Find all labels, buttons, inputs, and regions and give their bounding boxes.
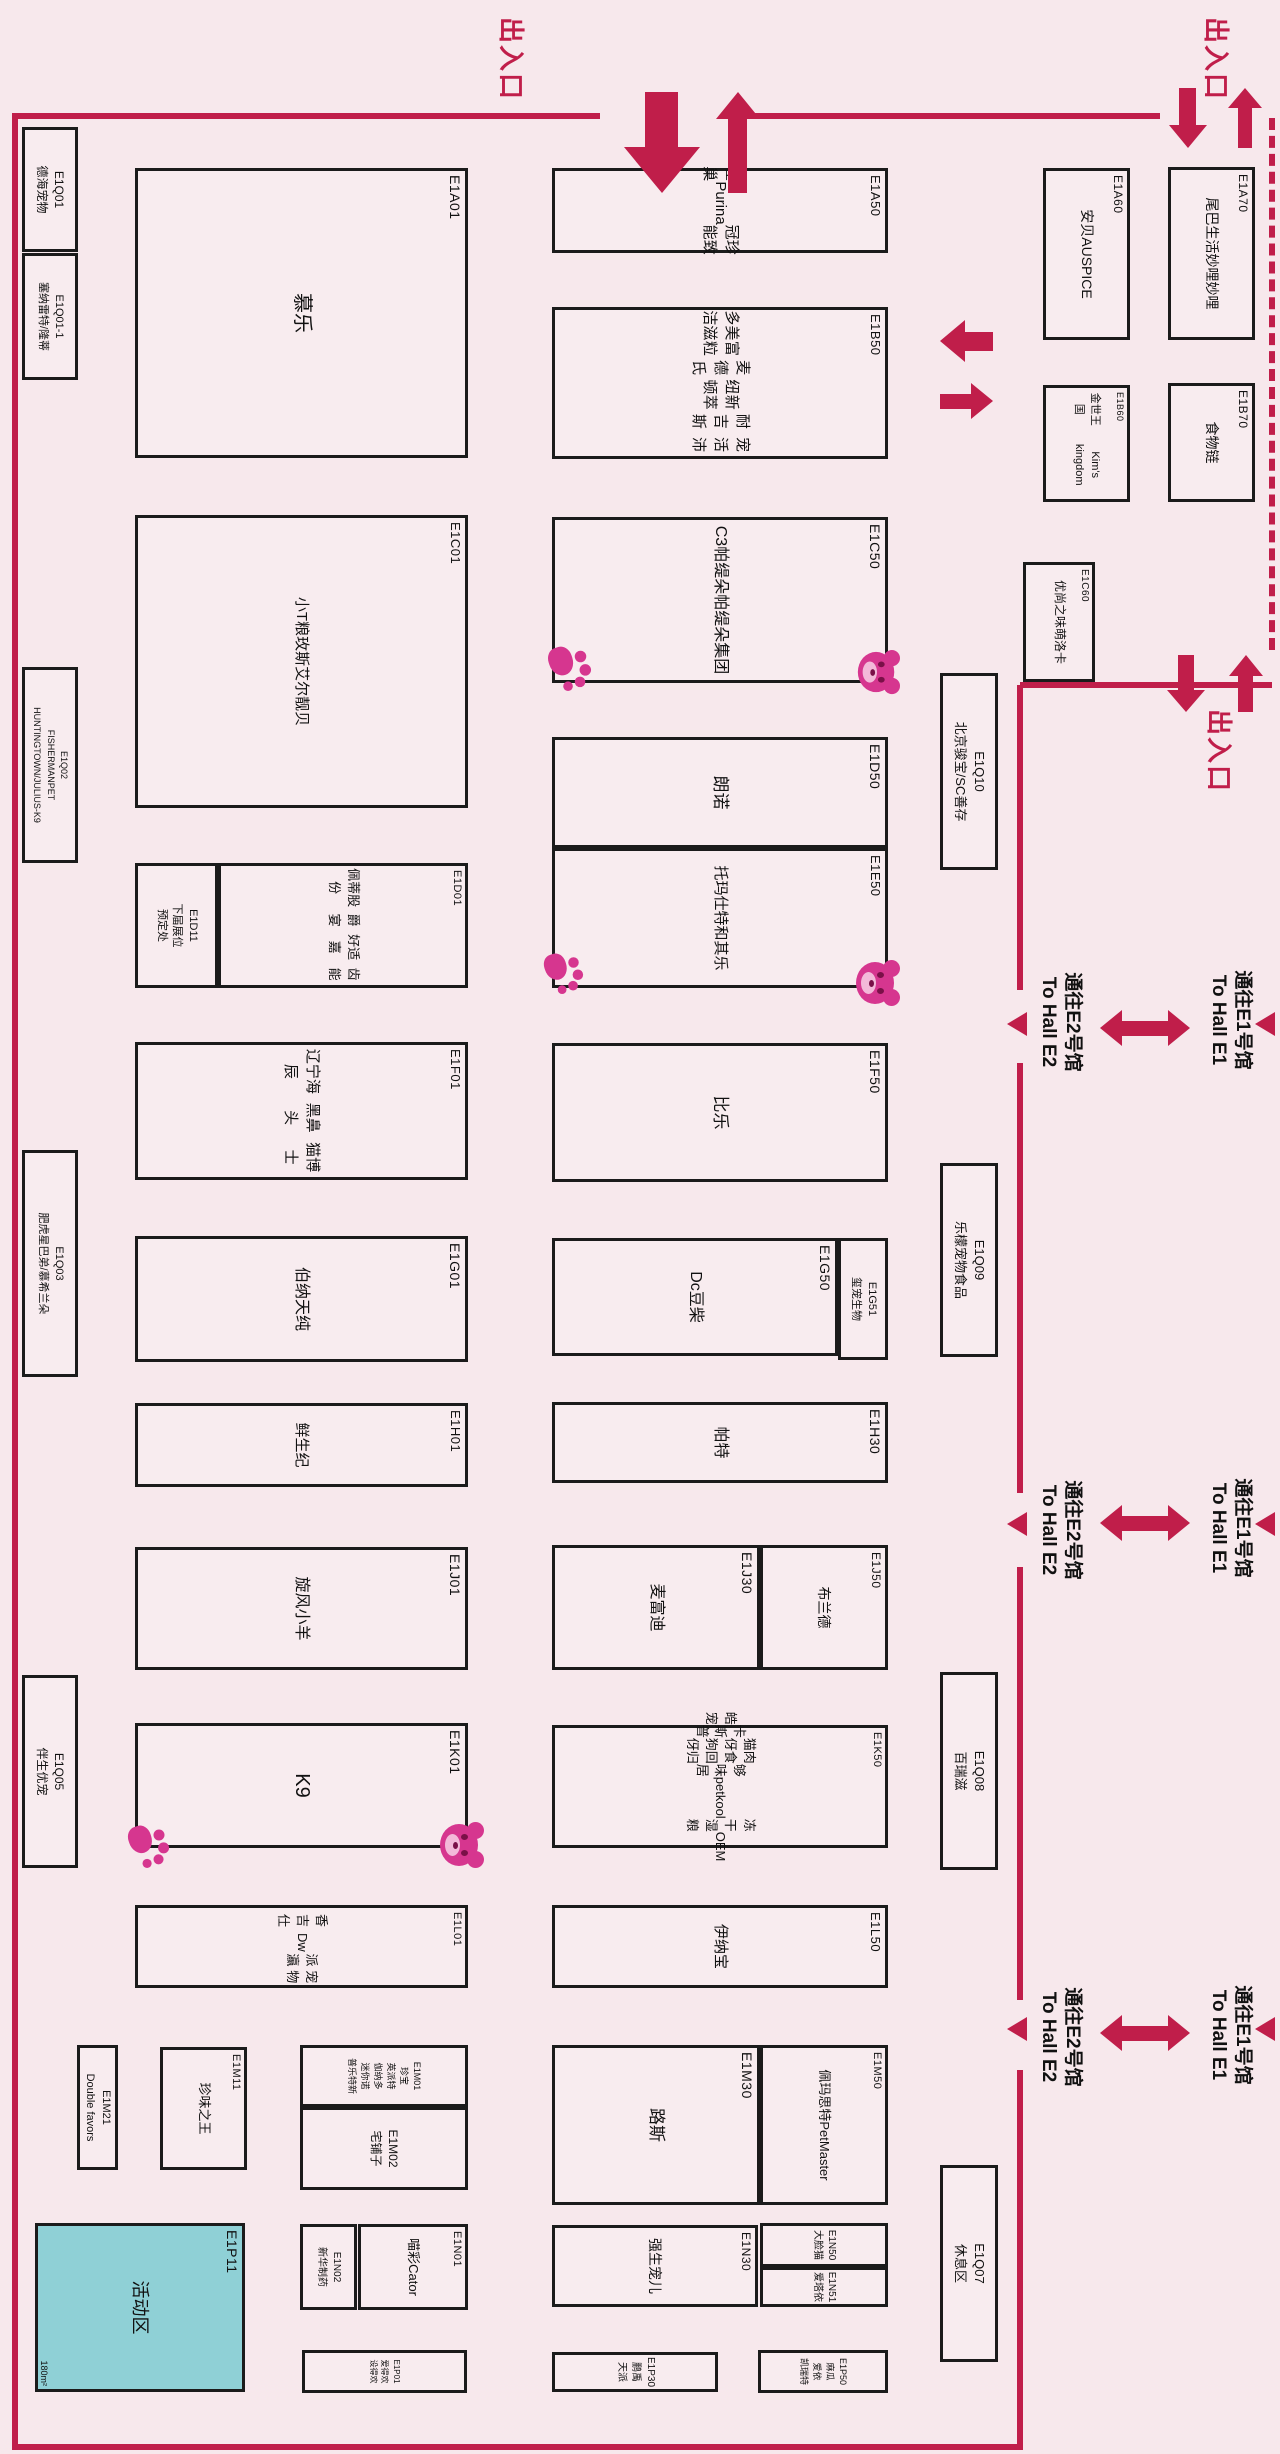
booth-id-label: E1L50 xyxy=(868,1912,883,1952)
booth-E1A70: 尾巴生活妙哩妙哩E1A70 xyxy=(1168,167,1255,340)
direction-triangle xyxy=(1007,2017,1027,2041)
booth-id-label: E1A01 xyxy=(447,175,463,220)
booth-E1P50: E1P50麻瓜爱依凯瑞特 xyxy=(758,2350,888,2393)
paw-icon-part xyxy=(541,951,570,983)
entrance-arrow xyxy=(1167,655,1205,712)
booth-name: 布兰德 xyxy=(763,1548,885,1667)
paw-icon-part xyxy=(125,1823,155,1856)
booth-id-label: E1M30 xyxy=(739,2052,755,2099)
arrow-head xyxy=(1167,690,1205,712)
booth-name: E1Q03肥虎星巴弟/慕希兰朵 xyxy=(25,1153,75,1374)
hall-link-sign: 通往E2号馆To Hall E2 xyxy=(1037,958,1085,1086)
booth-name: 慕乐 xyxy=(138,171,465,455)
hall-wall xyxy=(1017,1567,1023,2000)
arrow-head xyxy=(1168,2015,1190,2051)
booth-E1G50: Dc豆柴E1G50 xyxy=(552,1238,838,1356)
booth-name: E1D11下届展位预定处 xyxy=(138,866,215,985)
hall-link-sign: 通往E2号馆To Hall E2 xyxy=(1037,1466,1085,1594)
booth-id-label: E1N30 xyxy=(739,2232,753,2271)
booth-id-label: E1B70 xyxy=(1236,390,1250,429)
booth-id-label: E1B50 xyxy=(868,314,883,356)
arrow-shaft xyxy=(645,92,677,151)
booth-name: E1M21Double favors xyxy=(80,2048,115,2167)
booth-id-label: E1K50 xyxy=(871,1732,883,1768)
entrance-sign: 出入口 xyxy=(495,14,528,104)
booth-id-label: E1D50 xyxy=(867,744,883,789)
paw-icon xyxy=(546,645,592,691)
bear-icon-part xyxy=(878,662,885,668)
booth-E1E50: 托玛仕特和其乐E1E50 xyxy=(552,848,888,988)
direction-triangle xyxy=(1007,1512,1027,1536)
booth-E1Q10: E1Q10北京骏宝/SC善存 xyxy=(940,673,998,870)
booth-name: E1Q07休息区 xyxy=(943,2168,995,2359)
arrow-shaft xyxy=(940,394,973,410)
hall-link-arrow xyxy=(1100,2015,1190,2052)
booth-id-label: E1J01 xyxy=(447,1554,463,1596)
direction-triangle xyxy=(1255,2017,1275,2041)
booth-name: 帕特 xyxy=(555,1405,885,1480)
booth-E1K50: 皓宠卡斯普猫伢狗伢肉食回归够味居petkool冻干湿粮OEME1K50 xyxy=(552,1725,888,1848)
booth-E1Q02: E1Q02FISHERMANPETHUNTINGTOWN/JULIUS-K9 xyxy=(22,667,78,863)
paw-icon-part xyxy=(575,651,587,663)
booth-name: 多美洁滋富粒麦德氏纽顿新萃耐吉斯宠活沛 xyxy=(555,310,885,456)
booth-E1J01: 旋风小羊E1J01 xyxy=(135,1547,468,1670)
booth-E1J50: 布兰德E1J50 xyxy=(760,1545,888,1670)
booth-id-label: E1J50 xyxy=(869,1552,883,1589)
booth-name: E1M01珍宝英派特伽纳多迷你诺普乐特新 xyxy=(303,2048,465,2104)
arrow-head xyxy=(1228,88,1262,108)
bear-icon-part xyxy=(878,677,885,683)
booth-name: 活动区 xyxy=(38,2226,242,2389)
paw-icon xyxy=(126,1824,170,1868)
booth-E1Q01-1: E1Q01-1塞纳雷特/隆蒂 xyxy=(22,253,78,380)
booth-E1N30: 强生宠儿E1N30 xyxy=(552,2225,758,2307)
booth-name: 旋风小羊 xyxy=(138,1550,465,1667)
arrow-shaft xyxy=(1179,88,1195,127)
booth-E1Q08: E1Q08百瑞滋 xyxy=(940,1672,998,1870)
booth-E1B60: 金世王国Kim's kingdomE1B60 xyxy=(1043,385,1130,502)
hall-wall xyxy=(12,113,18,2450)
arrow-head xyxy=(1100,2015,1122,2051)
booth-name: E1P50麻瓜爱依凯瑞特 xyxy=(761,2353,885,2390)
booth-id-label: E1D01 xyxy=(451,870,463,906)
direction-triangle xyxy=(1255,1512,1275,1536)
booth-E1K01: K9E1K01 xyxy=(135,1723,468,1848)
booth-id-label: E1A60 xyxy=(1111,175,1125,214)
arrow-head xyxy=(1100,1010,1122,1046)
booth-name: E1G51玺宠生物 xyxy=(841,1241,885,1357)
booth-E1G51: E1G51玺宠生物 xyxy=(838,1238,888,1360)
booth-name: 托玛仕特和其乐 xyxy=(555,851,885,985)
arrow-shaft xyxy=(964,332,993,350)
booth-E1J30: 麦富迪E1J30 xyxy=(552,1545,760,1670)
bear-icon xyxy=(436,1822,484,1870)
bear-icon-part xyxy=(877,988,884,994)
booth-id-label: E1A70 xyxy=(1236,174,1250,213)
booth-name: 佩蒂股份爵宴好适嘉齿能 xyxy=(221,866,465,985)
booth-E1Q03: E1Q03肥虎星巴弟/慕希兰朵 xyxy=(22,1150,78,1377)
booth-name: E1N02新华制药 xyxy=(303,2227,354,2307)
booth-E1D50: 朗诺E1D50 xyxy=(552,737,888,848)
booth-E1Q01: E1Q01德海宠物 xyxy=(22,127,78,252)
booth-E1N02: E1N02新华制药 xyxy=(300,2224,357,2310)
arrow-shaft xyxy=(728,117,747,193)
booth-E1Q05: E1Q05伴生优宠 xyxy=(22,1675,78,1868)
booth-id-label: E1G50 xyxy=(817,1245,833,1291)
hall-wall xyxy=(1017,685,1023,990)
booth-id-label: E1H01 xyxy=(448,1410,463,1452)
booth-name: Dc豆柴 xyxy=(555,1241,835,1353)
paw-icon-part xyxy=(575,677,586,688)
booth-E1C60: 优尚之味萌洛卡E1C60 xyxy=(1023,562,1095,682)
paw-icon-part xyxy=(545,644,577,679)
booth-name: 小T粮玫斯艾尔靓贝 xyxy=(138,518,465,805)
booth-name: E1Q09乐檬宠物食品 xyxy=(943,1166,995,1354)
booth-id-label: E1E50 xyxy=(868,855,883,897)
booth-E1M11: 珍味之王E1M11 xyxy=(160,2047,247,2170)
booth-E1L50: 伊纳宝E1L50 xyxy=(552,1905,888,1988)
hall-wall xyxy=(755,113,1160,119)
booth-id-label: E1H30 xyxy=(867,1409,883,1454)
booth-E1P01: E1P01爱得欢设得欢 xyxy=(302,2350,467,2393)
arrow-head xyxy=(971,383,993,419)
hall-link-sign: 通往E1号馆To Hall E1 xyxy=(1207,1970,1255,2100)
arrow-shaft xyxy=(1238,674,1253,712)
booth-name: 强生宠儿 xyxy=(555,2228,755,2304)
arrow-shaft xyxy=(1120,2026,1169,2042)
booth-id-label: E1K01 xyxy=(447,1730,463,1775)
booth-id-label: E1L01 xyxy=(451,1912,463,1946)
booth-E1B50: 多美洁滋富粒麦德氏纽顿新萃耐吉斯宠活沛E1B50 xyxy=(552,307,888,459)
booth-E1M02: E1M02宅铺子 xyxy=(300,2107,468,2190)
booth-E1H30: 帕特E1H30 xyxy=(552,1402,888,1483)
booth-E1H01: 鲜生纪E1H01 xyxy=(135,1403,468,1487)
booth-name: 香吉仕Dw派瀛宠物 xyxy=(138,1908,465,1985)
booth-E1M30: 路斯E1M30 xyxy=(552,2045,760,2205)
paw-icon xyxy=(542,952,584,994)
booth-id-label: E1A50 xyxy=(868,175,883,217)
arrow-head xyxy=(1229,655,1263,676)
booth-E1N51: E1N51爱塔依 xyxy=(760,2267,888,2307)
arrow-head xyxy=(1168,1010,1190,1046)
booth-E1P11: 活动区E1P11180m² xyxy=(35,2223,245,2392)
arrow-head xyxy=(1100,1505,1122,1541)
arrow-head xyxy=(716,92,760,119)
booth-name: 麦富迪 xyxy=(555,1548,757,1667)
hall-wall xyxy=(12,113,600,119)
booth-E1N01: 喵彩CatorE1N01 xyxy=(358,2224,468,2310)
hall-wall xyxy=(12,2444,1020,2450)
entrance-arrow xyxy=(1228,655,1263,712)
booth-E1P30: E1P30鹏禹天派 xyxy=(552,2352,718,2392)
booth-E1D01: 佩蒂股份爵宴好适嘉齿能E1D01 xyxy=(218,863,468,988)
bear-icon-part xyxy=(877,972,884,978)
booth-E1C01: 小T粮玫斯艾尔靓贝E1C01 xyxy=(135,515,468,808)
booth-E1M01: E1M01珍宝英派特伽纳多迷你诺普乐特新 xyxy=(300,2045,468,2107)
hall-link-sign: 通往E2号馆To Hall E2 xyxy=(1037,1973,1085,2101)
arrow-shaft xyxy=(1120,1516,1169,1532)
paw-icon-part xyxy=(568,981,578,991)
arrow-shaft xyxy=(1178,655,1194,691)
booth-name: 比乐 xyxy=(555,1046,885,1179)
booth-E1F01: 辽宁海辰黑鼻头猫博士E1F01 xyxy=(135,1042,468,1180)
booth-name: C3帕缇朵帕缇朵集团 xyxy=(555,520,885,680)
booth-E1A01: 慕乐E1A01 xyxy=(135,168,468,458)
booth-name: 皓宠卡斯普猫伢狗伢肉食回归够味居petkool冻干湿粮OEM xyxy=(555,1728,885,1845)
booth-name: 伊纳宝 xyxy=(555,1908,885,1985)
booth-name: E1P01爱得欢设得欢 xyxy=(305,2353,464,2390)
booth-E1G01: 伯纳天纯E1G01 xyxy=(135,1236,468,1362)
entrance-arrow xyxy=(1228,88,1262,148)
entrance-arrow xyxy=(940,320,993,363)
booth-id-label: E1N01 xyxy=(451,2231,463,2267)
booth-E1D11: E1D11下届展位预定处 xyxy=(135,863,218,988)
booth-E1N50: E1N50大脸猫 xyxy=(760,2223,888,2267)
booth-id-label: E1C50 xyxy=(867,524,883,569)
booth-name: E1N50大脸猫 xyxy=(763,2226,885,2264)
paw-icon-part xyxy=(154,1854,164,1864)
arrow-head xyxy=(624,147,700,193)
arrow-shaft xyxy=(1120,1021,1169,1037)
booth-E1B70: 食物链E1B70 xyxy=(1168,383,1255,502)
booth-E1C50: C3帕缇朵帕缇朵集团E1C50 xyxy=(552,517,888,683)
hall-wall xyxy=(1269,118,1275,650)
booth-name: 路斯 xyxy=(555,2048,757,2202)
booth-name: E1Q01-1塞纳雷特/隆蒂 xyxy=(25,256,75,377)
hall-link-sign: 通往E1号馆To Hall E1 xyxy=(1207,955,1255,1085)
hall-link-sign: 通往E1号馆To Hall E1 xyxy=(1207,1463,1255,1593)
booth-name: K9 xyxy=(138,1726,465,1845)
booth-name: 喵彩Cator xyxy=(361,2227,465,2307)
booth-name: E1Q10北京骏宝/SC善存 xyxy=(943,676,995,867)
booth-E1M50: 佩玛思特PetMasterE1M50 xyxy=(760,2045,888,2205)
bear-icon xyxy=(852,960,900,1008)
booth-E1Q09: E1Q09乐檬宠物食品 xyxy=(940,1163,998,1357)
booth-id-label: E1F01 xyxy=(448,1049,463,1090)
bear-icon-part xyxy=(869,980,874,987)
hall-wall xyxy=(1017,1063,1023,1493)
direction-triangle xyxy=(1007,1012,1027,1036)
booth-id-label: E1M11 xyxy=(230,2054,242,2091)
arrow-head xyxy=(940,320,965,362)
booth-name: 伯纳天纯 xyxy=(138,1239,465,1359)
bear-icon xyxy=(854,650,900,696)
bear-icon-part xyxy=(461,1850,468,1856)
entrance-arrow xyxy=(715,92,760,193)
paw-icon-part xyxy=(563,681,573,691)
booth-name: E1N51爱塔依 xyxy=(763,2270,885,2304)
booth-E1L01: 香吉仕Dw派瀛宠物E1L01 xyxy=(135,1905,468,1988)
arrow-shaft xyxy=(1238,107,1252,148)
booth-name: E1Q08百瑞滋 xyxy=(943,1675,995,1867)
bear-icon-part xyxy=(453,1842,458,1849)
entrance-arrow xyxy=(623,92,700,193)
direction-triangle xyxy=(1255,1012,1275,1036)
entrance-arrow xyxy=(940,383,993,420)
booth-id-label: E1G01 xyxy=(447,1243,463,1289)
booth-id-label: E1F50 xyxy=(867,1050,883,1094)
paw-icon-part xyxy=(154,1830,165,1841)
area-note: 180m² xyxy=(39,2360,49,2386)
paw-icon-part xyxy=(580,664,592,676)
hall-wall xyxy=(1017,2070,1023,2450)
booth-id-label: E1B60 xyxy=(1115,392,1125,422)
booth-id-label: E1J30 xyxy=(739,1552,755,1594)
entrance-sign: 出入口 xyxy=(1200,14,1233,104)
paw-icon-part xyxy=(158,1842,169,1853)
entrance-sign: 出入口 xyxy=(1203,706,1236,796)
hall-link-arrow xyxy=(1100,1505,1190,1542)
booth-name: E1M02宅铺子 xyxy=(303,2110,465,2187)
booth-E1M21: E1M21Double favors xyxy=(77,2045,118,2170)
paw-icon-part xyxy=(558,985,567,994)
floor-plan: 尾巴生活妙哩妙哩E1A70食物链E1B70安贝AUSPICEE1A60金世王国K… xyxy=(0,0,1280,2454)
arrow-head xyxy=(1169,125,1207,148)
booth-id-label: E1P11 xyxy=(224,2230,240,2274)
paw-icon-part xyxy=(568,957,579,968)
paw-icon-part xyxy=(573,970,584,981)
booth-name: 鲜生纪 xyxy=(138,1406,465,1484)
screenshot-root: 尾巴生活妙哩妙哩E1A70食物链E1B70安贝AUSPICEE1A60金世王国K… xyxy=(0,0,1280,2454)
booth-name: 佩玛思特PetMaster xyxy=(763,2048,885,2202)
bear-icon-part xyxy=(870,669,875,676)
booth-name: 辽宁海辰黑鼻头猫博士 xyxy=(138,1045,465,1177)
booth-id-label: E1M50 xyxy=(871,2052,883,2089)
booth-id-label: E1C01 xyxy=(448,522,463,564)
booth-id-label: E1C60 xyxy=(1079,569,1090,602)
booth-name: 朗诺 xyxy=(555,740,885,845)
paw-icon-part xyxy=(143,1859,152,1868)
booth-E1A60: 安贝AUSPICEE1A60 xyxy=(1043,168,1130,340)
booth-name: E1Q05伴生优宠 xyxy=(25,1678,75,1865)
bear-icon-part xyxy=(461,1834,468,1840)
hall-link-arrow xyxy=(1100,1010,1190,1047)
arrow-head xyxy=(1168,1505,1190,1541)
booth-E1Q07: E1Q07休息区 xyxy=(940,2165,998,2362)
booth-E1F50: 比乐E1F50 xyxy=(552,1043,888,1182)
booth-name: E1Q02FISHERMANPETHUNTINGTOWN/JULIUS-K9 xyxy=(25,670,75,860)
booth-name: E1P30鹏禹天派 xyxy=(555,2355,715,2389)
booth-name: E1Q01德海宠物 xyxy=(25,130,75,249)
